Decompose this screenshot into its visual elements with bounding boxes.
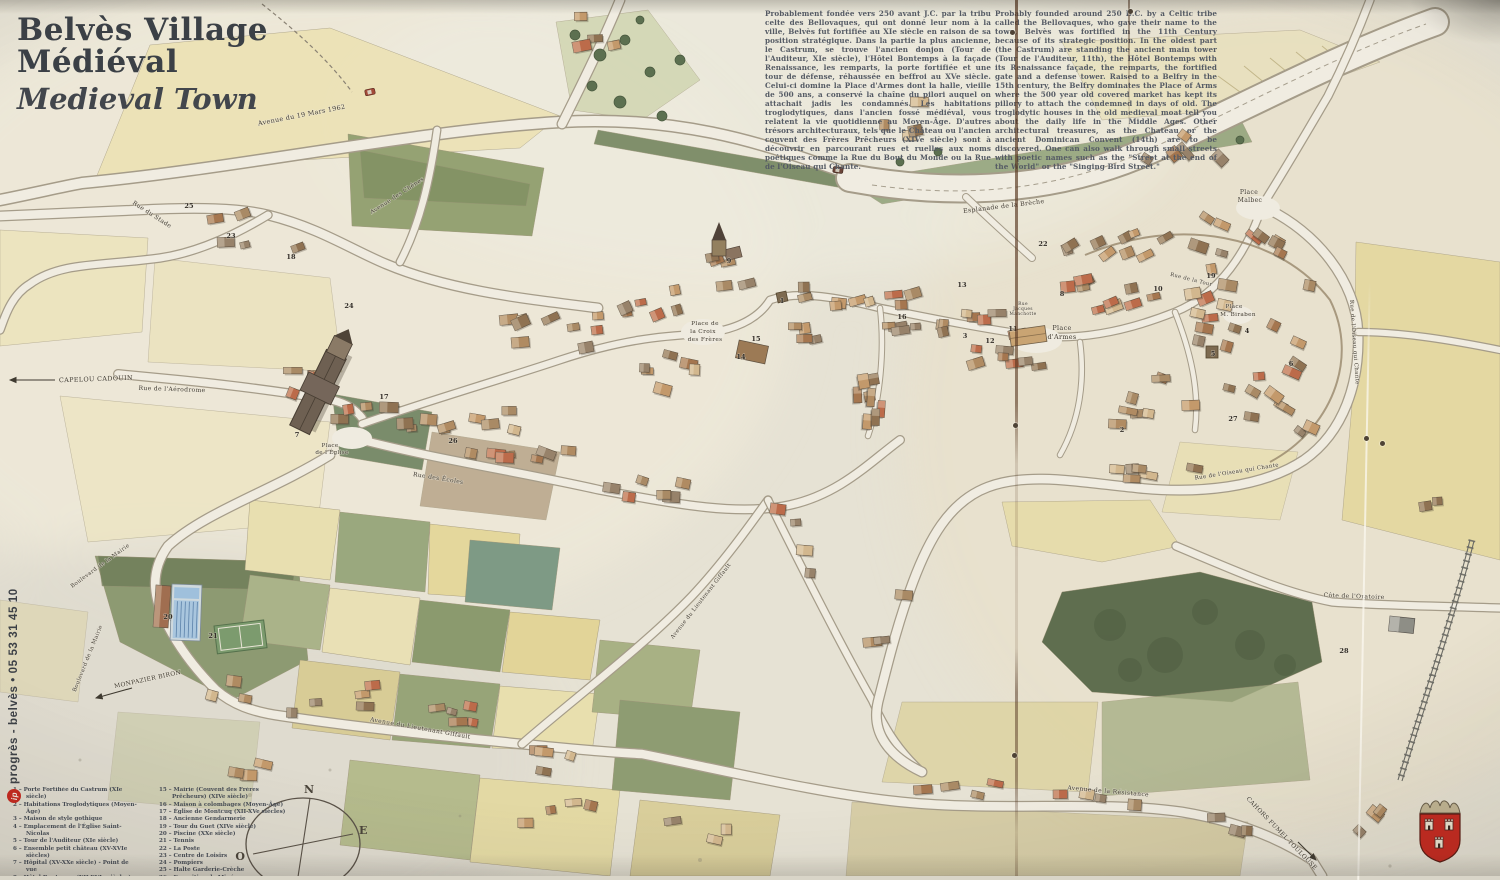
building <box>830 301 843 312</box>
building <box>865 388 876 408</box>
legend-item: 4 – Emplacement de l'Église Saint-Nicola… <box>13 824 137 839</box>
building <box>998 353 1010 363</box>
street-label: de l'Église <box>315 448 349 456</box>
building <box>379 402 400 414</box>
building <box>961 309 974 319</box>
building <box>639 363 651 374</box>
building <box>1095 794 1108 805</box>
building <box>797 334 814 344</box>
legend-number-marker: 3 <box>963 332 968 340</box>
legend-number-marker: 20 <box>163 613 173 621</box>
building <box>1152 374 1172 383</box>
legend-number-marker: 23 <box>226 232 236 240</box>
building <box>449 717 469 728</box>
map-legend: 1 – Porte Fortifiée du Castrum (XIe sièc… <box>13 787 295 876</box>
building <box>913 785 934 796</box>
legend-item: 16 – Maison à colombages (Moyen-Âge) <box>159 802 295 809</box>
legend-number-marker: 15 <box>751 335 761 343</box>
building <box>716 280 734 293</box>
building <box>1207 813 1226 824</box>
leisure-centre-building <box>153 585 171 628</box>
street-label: Malbec <box>1238 197 1263 204</box>
credit-text: progrès - belvès • 05 53 31 45 10 <box>8 588 20 784</box>
legend-number-marker: 14 <box>736 353 746 361</box>
building <box>495 452 515 465</box>
building <box>971 344 984 354</box>
building <box>1142 408 1156 420</box>
legend-number-marker: 4 <box>1245 327 1250 335</box>
building <box>988 309 1008 318</box>
publisher-logo-text: ip <box>10 792 19 800</box>
street-label: Place <box>1225 304 1243 310</box>
legend-item: 18 – Ancienne Gendarmerie <box>159 816 295 823</box>
legend-number-marker: 16 <box>897 313 907 321</box>
legend-number-marker: 6 <box>1289 360 1294 368</box>
building <box>226 675 244 689</box>
building <box>565 798 583 808</box>
legend-number-marker: 11 <box>1008 325 1017 333</box>
building <box>1108 419 1128 430</box>
building <box>591 325 605 337</box>
building <box>1432 497 1444 507</box>
building <box>397 418 415 431</box>
legend-number-marker: 17 <box>379 393 389 401</box>
legend-number-marker: 7 <box>295 431 300 439</box>
street-label: Manchotte <box>1009 312 1036 317</box>
building <box>622 491 637 504</box>
publisher-logo: ip <box>7 789 21 803</box>
legend-number-marker: 27 <box>1228 415 1238 423</box>
station-building <box>1388 616 1414 634</box>
building <box>1253 372 1266 382</box>
street-label: la Croix <box>690 329 716 335</box>
street-label: M. Biraben <box>1220 312 1256 318</box>
building <box>1053 790 1069 800</box>
building <box>657 490 672 500</box>
tennis-court <box>214 620 267 654</box>
building <box>420 413 439 427</box>
legend-item: 3 – Maison de style gothique <box>13 816 137 823</box>
building <box>365 680 382 692</box>
legend-number-marker: 13 <box>957 281 967 289</box>
legend-number-marker: 26 <box>448 437 458 445</box>
building <box>796 545 815 558</box>
building <box>518 818 535 829</box>
legend-item: 5 – Tour de l'Auditeur (XIe siècle) <box>13 838 137 845</box>
title-line1: Belvès Village <box>17 12 268 48</box>
building <box>805 568 817 580</box>
building <box>464 447 479 461</box>
legend-number-marker: 18 <box>286 253 296 261</box>
compass-e: E <box>359 824 367 837</box>
swimming-pool <box>170 584 202 641</box>
street-label: des Frères <box>688 336 723 343</box>
legend-item: 23 – Centre de Loisirs <box>159 853 295 860</box>
building <box>1132 464 1148 475</box>
building <box>502 406 518 416</box>
building <box>870 409 880 427</box>
building <box>769 503 787 517</box>
intro-paragraph-french: Probablement fondée vers 250 avant J.C. … <box>765 9 991 171</box>
building <box>511 336 531 349</box>
legend-number-marker: 24 <box>344 302 354 310</box>
building <box>561 446 578 458</box>
building <box>342 403 355 416</box>
building <box>534 747 555 759</box>
legend-item: 1 – Porte Fortifiée du Castrum (XIe sièc… <box>13 787 137 802</box>
building <box>1109 464 1126 475</box>
building <box>788 323 803 331</box>
legend-item: 22 – La Poste <box>159 846 295 853</box>
legend-number-marker: 2 <box>1120 426 1125 434</box>
building <box>1419 500 1434 513</box>
legend-item: 17 – Église de Montcuq (XII-XVe siècles) <box>159 809 295 816</box>
legend-number-marker: 19 <box>1206 272 1216 280</box>
building <box>1241 826 1254 838</box>
legend-item: 20 – Piscine (XXe siècle) <box>159 831 295 838</box>
legend-number-marker: 8 <box>1060 290 1065 298</box>
building <box>669 284 682 297</box>
building <box>283 367 303 375</box>
intro-paragraph-english: Probably founded around 250 B.C. by a Ce… <box>995 9 1217 171</box>
legend-number-marker: 5 <box>1211 350 1216 358</box>
building <box>286 708 298 719</box>
map-panel-photo: Avenue du 19 Mars 1962Rue du StadeAvenue… <box>0 0 1500 876</box>
building <box>721 824 733 836</box>
building <box>574 12 588 22</box>
building <box>360 402 374 413</box>
building <box>481 418 501 431</box>
street-label: Place de <box>691 321 719 327</box>
panel-title: Belvès Village Médiéval Medieval Town <box>17 14 268 115</box>
legend-number-marker: 12 <box>985 337 994 345</box>
building <box>592 311 605 321</box>
legend-item: 19 – Tour du Guet (XIVe siècle) <box>159 824 295 831</box>
legend-item: 21 – Tennis <box>159 838 295 845</box>
street-label: Place <box>1052 324 1071 332</box>
building <box>895 300 909 311</box>
coat-of-arms <box>1420 801 1460 862</box>
legend-column-2: 15 – Mairie (Couvent des Frères Prêcheur… <box>159 787 295 876</box>
street-label: Place <box>1240 189 1258 196</box>
building <box>798 282 811 294</box>
legend-number-marker: 1 <box>780 297 785 305</box>
building <box>1123 475 1142 485</box>
legend-number-marker: 25 <box>184 202 194 210</box>
building <box>1127 799 1143 813</box>
legend-item: 6 – Ensemble petit château (XV-XVIe sièc… <box>13 846 137 861</box>
legend-number-marker: 21 <box>208 632 217 640</box>
building <box>1182 400 1202 412</box>
illustrated-town-map: Avenue du 19 Mars 1962Rue du StadeAvenue… <box>0 0 1500 876</box>
building <box>895 590 915 603</box>
legend-number-marker: 9 <box>727 257 732 265</box>
street-label: Place <box>321 443 338 449</box>
title-english: Medieval Town <box>17 84 268 114</box>
legend-item: 2 – Habitations Troglodytiques (Moyen-Âg… <box>13 802 137 817</box>
legend-column-1: 1 – Porte Fortifiée du Castrum (XIe sièc… <box>13 787 137 876</box>
building <box>356 702 376 712</box>
building <box>309 698 323 707</box>
legend-item: 15 – Mairie (Couvent des Frères Prêcheur… <box>159 787 295 802</box>
credit-line: ip progrès - belvès • 05 53 31 45 10 <box>5 561 23 803</box>
legend-number-marker: 10 <box>1153 285 1163 293</box>
building <box>689 364 701 377</box>
building <box>1018 356 1034 367</box>
legend-number-marker: 22 <box>1038 240 1047 248</box>
legend-item: 25 – Halte Garderie-Crèche <box>159 867 295 874</box>
legend-item: 7 – Hôpital (XV-XXe siècle) - Point de v… <box>13 860 137 875</box>
street-label: d'Armes <box>1047 333 1076 341</box>
title-line2: Médiéval <box>17 44 178 80</box>
legend-number-marker: 28 <box>1339 647 1349 655</box>
compass-n: N <box>304 783 314 796</box>
